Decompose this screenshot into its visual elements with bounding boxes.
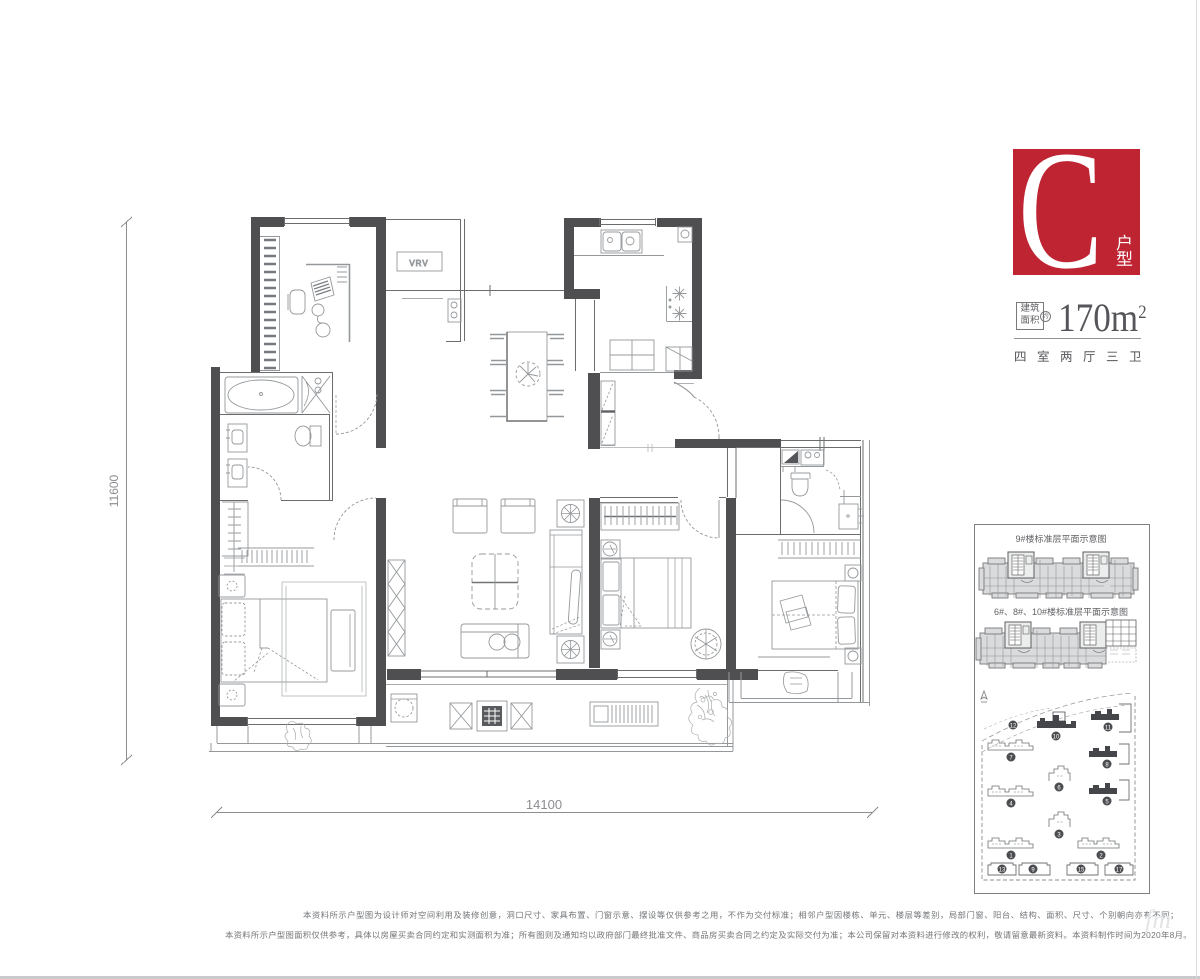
svg-text:VRV: VRV: [409, 259, 428, 268]
svg-text:11600: 11600: [107, 474, 121, 507]
svg-text:14100: 14100: [526, 797, 562, 812]
